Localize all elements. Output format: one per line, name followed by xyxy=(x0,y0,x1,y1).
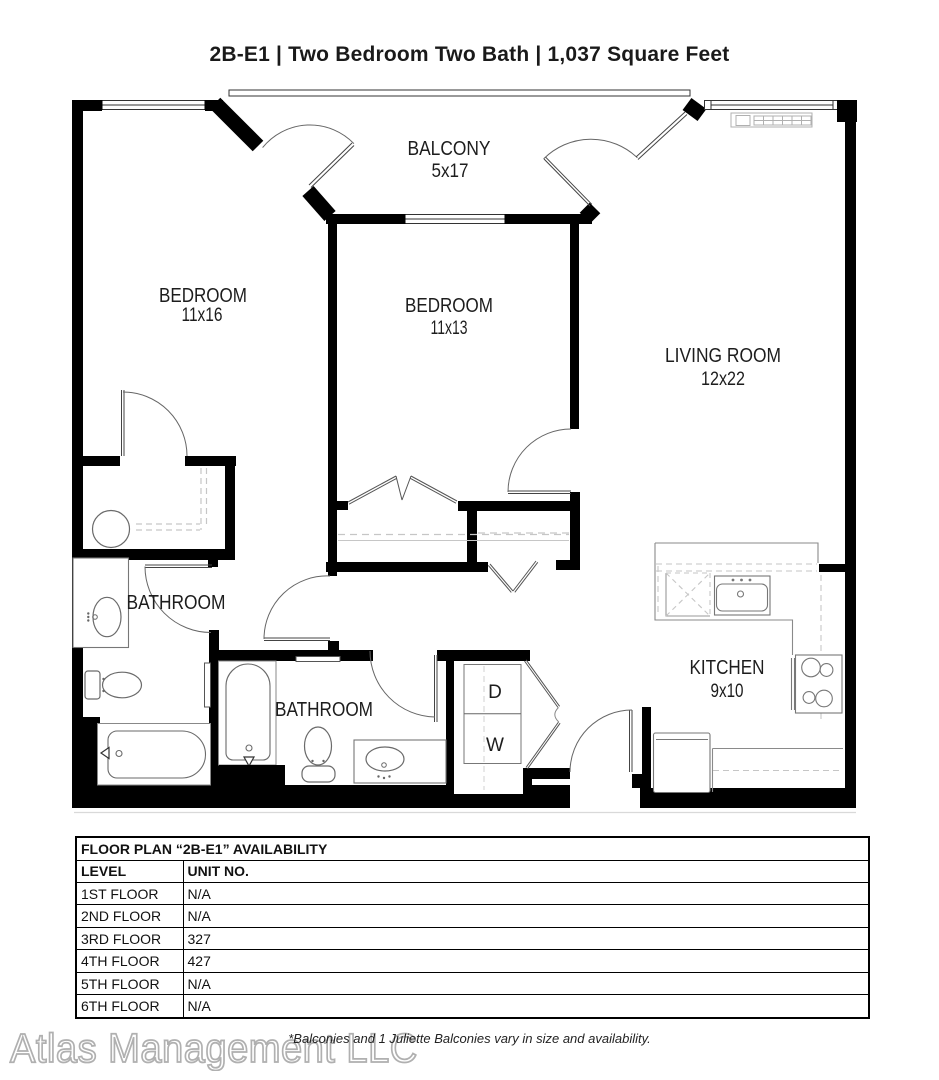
svg-text:11x13: 11x13 xyxy=(431,317,468,339)
svg-text:LIVING ROOM: LIVING ROOM xyxy=(665,344,781,367)
svg-text:11x16: 11x16 xyxy=(182,304,223,326)
svg-text:BATHROOM: BATHROOM xyxy=(127,592,226,614)
svg-text:D: D xyxy=(488,682,502,703)
svg-text:9x10: 9x10 xyxy=(711,680,744,702)
svg-text:5x17: 5x17 xyxy=(432,160,469,182)
svg-text:12x22: 12x22 xyxy=(701,368,745,390)
svg-text:KITCHEN: KITCHEN xyxy=(690,656,765,679)
svg-text:BEDROOM: BEDROOM xyxy=(405,294,493,317)
svg-text:BALCONY: BALCONY xyxy=(408,137,491,160)
svg-text:W: W xyxy=(486,735,504,756)
svg-text:BATHROOM: BATHROOM xyxy=(275,699,373,721)
